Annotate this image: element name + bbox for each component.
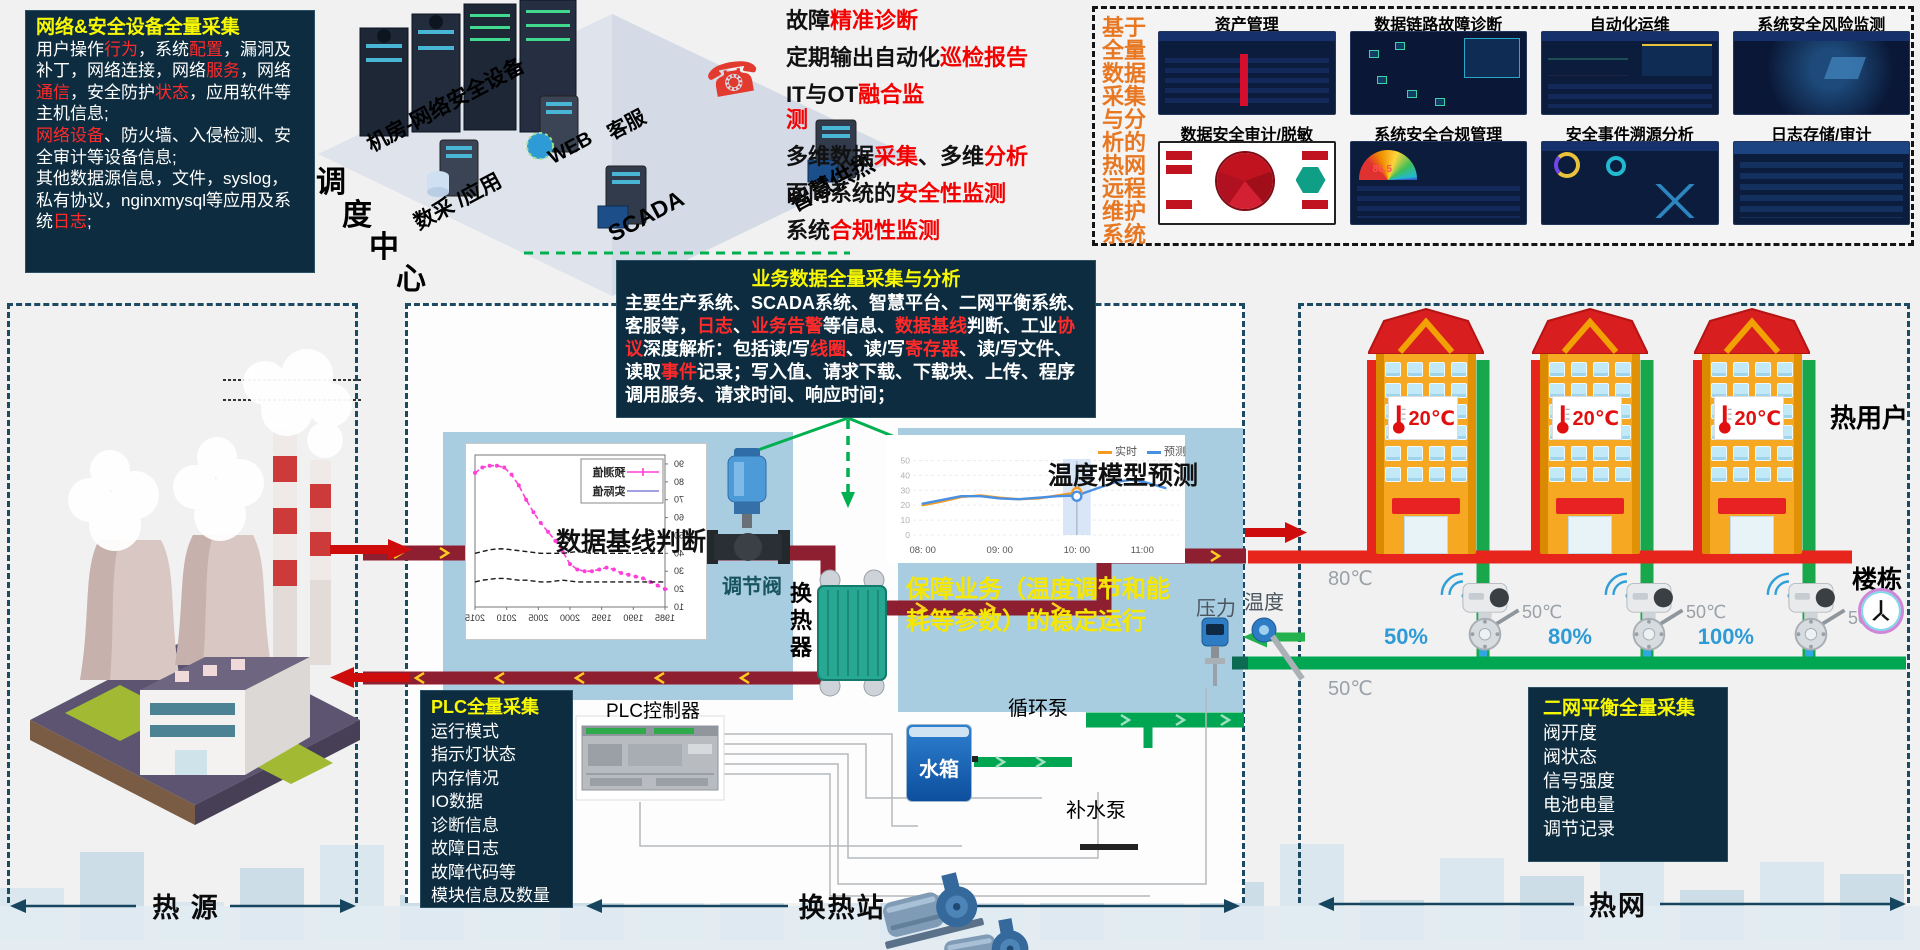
heat-network-zone-label: 热网 <box>1578 884 1658 923</box>
svg-text:11:00: 11:00 <box>1131 545 1154 556</box>
balance-valve-3 <box>1768 574 1845 650</box>
svg-text:40: 40 <box>901 470 911 480</box>
svg-text:10: 00: 10: 00 <box>1064 545 1090 556</box>
svg-text:08: 00: 08: 00 <box>909 545 935 556</box>
valve-2-temp: 50℃ <box>1686 602 1726 623</box>
heat-source-zone-label: 热 源 <box>140 886 232 925</box>
heat-user-building-1: 20℃ <box>1368 308 1484 554</box>
building-unit-icon: 丫 <box>1858 588 1904 634</box>
indoor-thermometer: 20℃ <box>1552 396 1622 440</box>
balance-valve-2 <box>1606 574 1683 650</box>
svg-text:70: 70 <box>674 495 684 505</box>
svg-text:1990: 1990 <box>623 613 643 623</box>
svg-text:20: 20 <box>901 500 911 510</box>
svg-text:1985: 1985 <box>655 613 675 623</box>
bizbox-title: 业务数据全量采集与分析 <box>625 264 1087 291</box>
svg-text:2010: 2010 <box>497 613 517 623</box>
svg-text:10: 10 <box>674 602 684 612</box>
baseline-chart-overlay-label: 数据基线判断 <box>556 522 706 558</box>
plc-controller-label: PLC控制器 <box>606 696 700 723</box>
water-tank: 水箱 <box>906 724 972 802</box>
svg-text:2000: 2000 <box>560 613 580 623</box>
temperature-label: 温度 <box>1244 586 1284 615</box>
svg-text:2005: 2005 <box>528 613 548 623</box>
valve-1-temp: 50℃ <box>1522 602 1562 623</box>
svg-text:30: 30 <box>674 566 684 576</box>
heat-user-building-2: 20℃ <box>1532 308 1648 554</box>
valve-3-opening: 100% <box>1688 624 1754 650</box>
heat-exchanger-label: 换热器 <box>790 580 814 661</box>
control-valve-label: 调节阀 <box>722 570 782 599</box>
svg-text:预测值: 预测值 <box>593 465 626 479</box>
svg-text:1995: 1995 <box>592 613 612 623</box>
valve-1-opening: 50% <box>1370 624 1428 650</box>
heat-exchanger-icon <box>818 570 886 696</box>
svg-text:80: 80 <box>674 477 684 487</box>
exchange-station-zone-label: 换热站 <box>790 886 894 925</box>
supply-temp-label: 80℃ <box>1328 566 1373 591</box>
makeup-pump-label: 补水泵 <box>1066 794 1126 823</box>
svg-text:2015: 2015 <box>465 613 485 623</box>
secondary-network-balance-panel: 二网平衡全量采集 阀开度阀状态信号强度电池电量调节记录 <box>1528 687 1728 862</box>
svg-text:09: 00: 09: 00 <box>987 545 1013 556</box>
temperature-sensor-icon <box>1252 618 1305 681</box>
indoor-thermometer: 20℃ <box>1388 396 1458 440</box>
svg-text:90: 90 <box>674 459 684 469</box>
heating-network-architecture-diagram: { "netbox": { "title": "网络&安全设备全量采集", "b… <box>0 0 1920 950</box>
indoor-thermometer: 20℃ <box>1714 396 1784 440</box>
business-data-collection-box: 业务数据全量采集与分析 主要生产系统、SCADA系统、智慧平台、二网平衡系统、客… <box>616 260 1096 418</box>
control-valve-icon <box>706 448 790 564</box>
svg-text:30: 30 <box>901 485 911 495</box>
balance-items: 阀开度阀状态信号强度电池电量调节记录 <box>1543 721 1713 841</box>
heat-users-label: 热用户 <box>1830 398 1908 435</box>
bizbox-body: 主要生产系统、SCADA系统、智慧平台、二网平衡系统、客服等，日志、业务告警等信… <box>625 292 1087 407</box>
valve-2-opening: 80% <box>1534 624 1592 650</box>
assurance-statement: 保障业务（温度调节和能耗等参数）的稳定运行 <box>906 574 1236 638</box>
svg-text:20: 20 <box>674 584 684 594</box>
balance-valve-1 <box>1442 574 1519 650</box>
svg-text:实际值: 实际值 <box>593 484 626 498</box>
circulation-pump-label: 循环泵 <box>1008 692 1068 721</box>
plc-controller-icon <box>576 716 724 800</box>
svg-text:10: 10 <box>901 515 911 525</box>
plc-collection-panel: PLC全量采集 运行模式指示灯状态内存情况IO数据诊断信息故障日志故障代码等模块… <box>420 690 573 908</box>
return-temp-label: 50℃ <box>1328 676 1373 701</box>
plc-collection-items: 运行模式指示灯状态内存情况IO数据诊断信息故障日志故障代码等模块信息及数量 <box>431 720 562 908</box>
roof-icon <box>1368 308 1484 354</box>
svg-text:0: 0 <box>905 530 910 540</box>
green-down-arrowhead <box>841 492 855 508</box>
heat-user-building-3: 20℃ <box>1694 308 1810 554</box>
svg-text:50: 50 <box>901 455 911 465</box>
temp-chart-overlay-label: 温度模型预测 <box>1048 456 1198 492</box>
